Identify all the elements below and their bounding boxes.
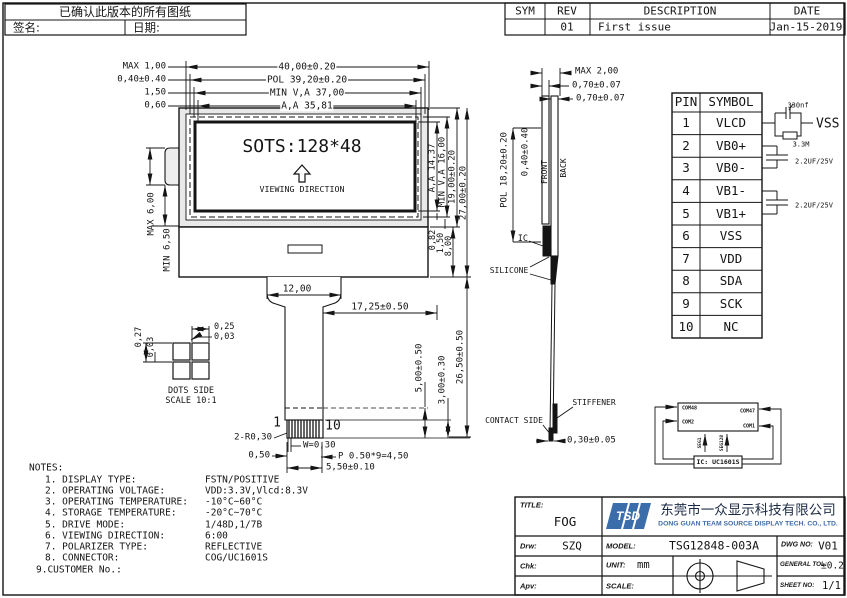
pin-table-header-pin: PIN (675, 96, 698, 109)
rev-header-rev: REV (557, 6, 577, 17)
side-contact-label: CONTACT SIDE (485, 417, 543, 425)
dim-max-100: MAX 1,00 (123, 63, 166, 72)
company-name-en: DONG GUAN TEAM SOURCE DISPLAY TECH. CO.,… (658, 522, 838, 529)
date-label: 日期: (133, 22, 160, 34)
pin-first-label: 1 (273, 417, 281, 430)
pin-last-label: 10 (325, 420, 341, 433)
note-label: 8. CONNECTOR: (45, 553, 119, 563)
rev-cell-rev: 01 (560, 22, 573, 33)
model-value: TSG12848-003A (669, 540, 759, 552)
note-label: 4. STORAGE TEMPERATURE: (45, 508, 177, 518)
pin-symbol: VSS (720, 230, 743, 243)
pin-number: 6 (682, 230, 690, 243)
pin-number: 5 (682, 208, 690, 221)
dim-minva-width: MIN V,A 37,00 (269, 88, 345, 98)
note-value: FSTN/POSITIVE (205, 475, 279, 485)
com48-label: COM48 (682, 407, 697, 412)
note-label: 7. POLARIZER TYPE: (45, 542, 148, 552)
dim-12: 12,00 (282, 284, 313, 294)
side-back-label: BACK (560, 158, 568, 177)
general-tol-label: GENERAL TOL: (780, 562, 827, 568)
pin-symbol: VB0+ (716, 140, 746, 153)
dim-max-6: MAX 6,00 (148, 192, 157, 235)
note-value: VDD:3.3V,Vlcd:8.3V (205, 486, 308, 496)
circuit-cap1-label: 2.2UF/25V (795, 159, 833, 166)
confirm-title: 已确认此版本的所有图纸 (59, 6, 191, 18)
pin-number: 9 (682, 298, 690, 311)
dim-pol-width: POL 39,20±0.20 (266, 75, 348, 85)
circuit-vss-label: VSS (816, 118, 839, 131)
dwg-no-label: DWG NO: (781, 542, 813, 549)
apv-label: Apv: (520, 582, 537, 590)
drw-label: Drw: (520, 542, 537, 550)
chk-label: Chk: (520, 562, 537, 570)
pin-symbol: NC (723, 321, 738, 334)
pin-symbol: VB0- (716, 162, 746, 175)
side-stiffener-label: STIFFENER (572, 399, 615, 407)
dots-caption-1: DOTS SIDE (168, 387, 214, 396)
pin-symbol: VB1- (716, 185, 746, 198)
dim-1725: 17,25±0.50 (350, 302, 409, 312)
sheet-no-value: 1/1 (822, 581, 841, 592)
drawing-sheet: 已确认此版本的所有图纸 签名: 日期: SYM REV DESCRIPTION … (0, 0, 847, 598)
model-label: MODEL: (606, 542, 636, 550)
dots-dim-027: 0,27 (135, 327, 144, 347)
pin-number: 3 (682, 162, 690, 175)
dim-r030: 2-R0,30 (234, 434, 272, 443)
logo-text: TSD (616, 510, 640, 522)
driver-ic-label: IC: UC1601S (696, 459, 739, 466)
rev-header-sym: SYM (515, 6, 535, 17)
com47-label: COM47 (740, 410, 755, 415)
com1-label: COM1 (743, 425, 755, 430)
scale-label: SCALE: (606, 582, 634, 590)
side-ic-label: IC (518, 235, 528, 244)
sign-label: 签名: (13, 22, 40, 34)
pin-table-header-symbol: SYMBOL (708, 96, 753, 109)
dots-caption-2: SCALE 10:1 (165, 397, 216, 406)
dots-dim-003-top: 0,03 (214, 333, 234, 342)
pin-number: 10 (678, 321, 693, 334)
pin-symbol: SDA (720, 275, 743, 288)
dots-dim-003-left: 0,03 (147, 337, 156, 357)
note-value: -20°C~70°C (205, 508, 262, 518)
note-label: 3. OPERATING TEMPERATURE: (45, 497, 188, 507)
note-label: 9.CUSTOMER No.: (36, 565, 122, 575)
dim-550: 5,50±0.10 (326, 464, 375, 473)
unit-label: UNIT: (606, 561, 625, 569)
unit-value: mm (637, 560, 650, 571)
dim-300: 3,00±0.30 (439, 356, 448, 405)
seg128-label: SEG128 (721, 435, 726, 451)
note-label: 2. OPERATING VOLTAGE: (45, 486, 165, 496)
side-front-label: FRONT (541, 160, 549, 184)
side-dim-max2: MAX 2,00 (575, 68, 618, 77)
dim-500: 5,00±0.50 (416, 344, 425, 393)
viewing-direction-label: VIEWING DIRECTION (260, 185, 345, 193)
screen-resolution-text: SOTS:128*48 (242, 138, 361, 156)
note-value: 6:00 (205, 531, 228, 541)
rev-header-description: DESCRIPTION (644, 6, 717, 17)
side-dim-030: 0,30±0.05 (567, 437, 616, 446)
side-dim-070b: 0,70±0.07 (576, 95, 625, 104)
pin-symbol: SCK (720, 298, 743, 311)
note-value: 1/48D,1/7B (205, 520, 262, 530)
circuit-cap330-label: 330nf (787, 103, 808, 110)
dim-150: 1,50 (144, 89, 166, 98)
general-tol-value: ±0.2 (821, 561, 844, 571)
dim-800: 8,00 (445, 236, 454, 256)
pin-number: 1 (682, 117, 690, 130)
dim-27: 27,00±0.20 (460, 166, 469, 220)
dim-050: 0,50 (248, 452, 270, 461)
dim-040: 0,40±0.40 (117, 76, 166, 85)
pin-symbol: VB1+ (716, 208, 746, 221)
note-value: REFLECTIVE (205, 542, 262, 552)
side-dim-040: 0,40±0.40 (522, 128, 531, 177)
side-dim-070a: 0,70±0.07 (572, 82, 621, 91)
dim-aa-width: A,A 35,81 (280, 101, 333, 111)
rev-header-date: DATE (794, 6, 821, 17)
note-label: 6. VIEWING DIRECTION: (45, 531, 165, 541)
circuit-res33m-label: 3.3M (793, 142, 810, 149)
dim-pitch: P 0.50*9=4,50 (338, 453, 408, 462)
dots-dim-025: 0,25 (214, 323, 234, 332)
title-label: TITLE: (520, 501, 543, 509)
company-name-cn: 东莞市一众显示科技有限公司 (660, 504, 836, 518)
pin-symbol: VDD (720, 253, 743, 266)
dim-060: 0,60 (144, 102, 166, 111)
note-label: 5. DRIVE MODE: (45, 520, 125, 530)
dim-width-40: 40,00±0.20 (277, 62, 336, 72)
side-view-outline (542, 96, 558, 441)
dim-w030: W=0,30 (303, 442, 336, 451)
circuit-cap2-label: 2.2UF/25V (795, 203, 833, 210)
pin-symbol: VLCD (716, 117, 746, 130)
drawing-title: FOG (554, 516, 577, 529)
dim-19: 19,00±0.20 (449, 150, 458, 204)
dim-minva-height: MIN V,A 16,00 (439, 137, 448, 207)
note-label: 1. DISPLAY TYPE: (45, 475, 137, 485)
com2-label: COM2 (682, 421, 694, 426)
pin-number: 7 (682, 253, 690, 266)
note-value: COG/UC1601S (205, 553, 268, 563)
pin-number: 8 (682, 275, 690, 288)
dim-aa-height: A,A 14,37 (429, 144, 438, 193)
side-dim-pol: POL 18,20±0.20 (501, 132, 510, 208)
drw-value: SZQ (562, 541, 582, 552)
pin-number: 2 (682, 140, 690, 153)
side-silicone-label: SILICONE (490, 267, 529, 275)
sheet-no-label: SHEET NO: (780, 583, 814, 589)
projection-symbol-icon (670, 559, 772, 593)
seg1-label: SEG1 (699, 438, 704, 449)
dwg-no-value: V01 (818, 541, 838, 552)
rev-cell-description: First issue (598, 22, 671, 33)
pin-number: 4 (682, 185, 690, 198)
dim-min-65: MIN 6,50 (164, 228, 173, 271)
rev-cell-date: Jan-15-2019 (770, 22, 843, 33)
dim-2650: 26,50±0.50 (457, 330, 466, 384)
note-value: -10°C~60°C (205, 497, 262, 507)
notes-title: NOTES: (29, 463, 63, 473)
